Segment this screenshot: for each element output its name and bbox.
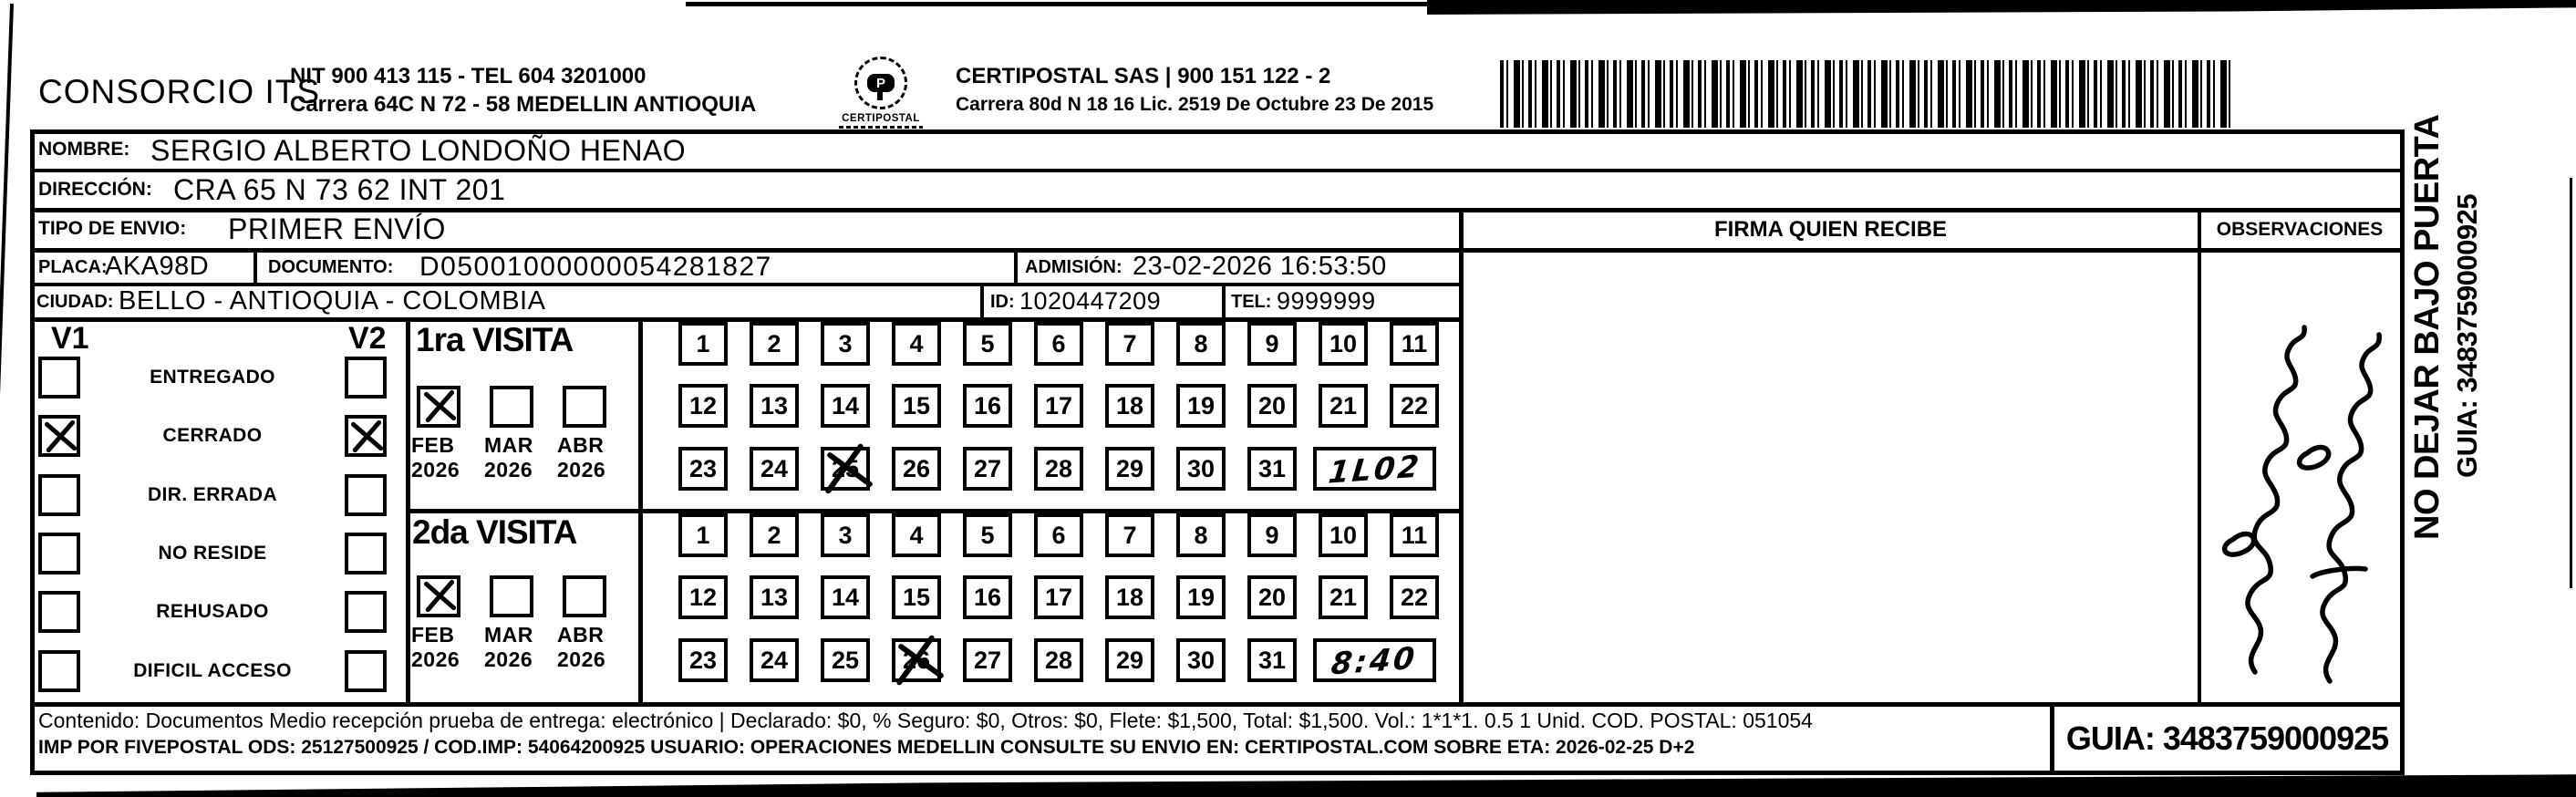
- time-note-box: 1L02: [1313, 447, 1436, 491]
- month-label: ABR: [557, 623, 604, 647]
- id-label: ID:: [990, 292, 1015, 313]
- day-cell-31: 31: [1247, 638, 1297, 682]
- day-cell-25: 25: [821, 447, 870, 491]
- day-cell-24: 24: [750, 638, 799, 682]
- grid-line: [980, 283, 984, 321]
- day-cell-28: 28: [1034, 638, 1083, 682]
- v2-checkbox: [345, 591, 387, 633]
- handwritten-time: 8:40: [1329, 639, 1419, 681]
- month-year: 2026: [484, 647, 533, 672]
- day-cell-14: 14: [821, 575, 870, 619]
- scanned-delivery-form: CONSORCIO ITS NIT 900 413 115 - TEL 604 …: [0, 0, 2576, 797]
- day-cell-13: 13: [750, 384, 799, 428]
- month-checkbox: [417, 575, 460, 617]
- documento-value: D05001000000054281827: [419, 252, 772, 283]
- grid-line: [1222, 283, 1226, 321]
- day-cell-15: 15: [892, 384, 941, 428]
- time-note-box: 8:40: [1313, 638, 1436, 682]
- grid-line: [2198, 208, 2201, 707]
- grid-line: [1014, 248, 1018, 286]
- day-cell-19: 19: [1176, 575, 1226, 619]
- day-cell-15: 15: [892, 575, 941, 619]
- handwritten-time: 1L02: [1327, 448, 1423, 490]
- visit2-months: FEB2026MAR2026ABR2026: [411, 575, 630, 672]
- status-rows: ENTREGADOCERRADODIR. ERRADANO RESIDEREHU…: [38, 348, 387, 700]
- day-cell-29: 29: [1105, 447, 1154, 491]
- grid-line: [406, 317, 410, 707]
- v2-checkbox: [345, 415, 387, 457]
- day-cell-5: 5: [963, 322, 1012, 366]
- grid-line: [30, 129, 35, 775]
- day-cell-25: 25: [821, 638, 870, 682]
- day-cell-10: 10: [1319, 322, 1368, 366]
- day-cell-30: 30: [1176, 638, 1226, 682]
- partner-license: Carrera 80d N 18 16 Lic. 2519 De Octubre…: [956, 90, 1433, 119]
- direccion-label: DIRECCIÓN:: [38, 179, 152, 201]
- scan-artifact-left-edge: [0, 4, 14, 797]
- status-label: DIFICIL ACCESO: [80, 660, 345, 682]
- day-cell-20: 20: [1247, 575, 1297, 619]
- month-item: FEB2026: [411, 575, 484, 672]
- day-cell-24: 24: [750, 447, 799, 491]
- footer-imp-line: IMP POR FIVEPOSTAL ODS: 25127500925 / CO…: [38, 737, 1694, 759]
- day-cell-30: 30: [1176, 447, 1226, 491]
- day-cell-2: 2: [750, 513, 799, 557]
- grid-line: [30, 169, 2405, 172]
- scan-artifact-top-band: [1427, 0, 2576, 15]
- v2-checkbox: [345, 533, 387, 574]
- status-label: NO RESIDE: [80, 543, 345, 564]
- day-cell-22: 22: [1390, 575, 1439, 619]
- day-cell-31: 31: [1247, 447, 1297, 491]
- v1-checkbox: [38, 415, 80, 457]
- ciudad-value: BELLO - ANTIOQUIA - COLOMBIA: [119, 286, 545, 316]
- day-cell-3: 3: [821, 513, 870, 557]
- day-cell-1: 1: [678, 513, 728, 557]
- status-label: REHUSADO: [80, 601, 345, 623]
- day-cell-13: 13: [750, 575, 799, 619]
- footer-content-line: Contenido: Documentos Medio recepción pr…: [38, 709, 1813, 733]
- scan-artifact-top-line: [686, 2, 1429, 6]
- day-cell-18: 18: [1105, 575, 1154, 619]
- day-cell-12: 12: [678, 575, 728, 619]
- day-cell-27: 27: [963, 638, 1012, 682]
- status-label: DIR. ERRADA: [80, 484, 345, 506]
- visit2-day-grid: 1234567891011121314151617181920212223242…: [638, 509, 1463, 705]
- day-cell-16: 16: [963, 384, 1012, 428]
- day-cell-23: 23: [678, 638, 728, 682]
- logo-p-glyph-icon: P: [867, 74, 895, 92]
- status-row: NO RESIDE: [38, 524, 387, 583]
- day-cell-7: 7: [1105, 322, 1154, 366]
- grid-line: [30, 771, 2405, 775]
- guia-number-box: GUIA: 3483759000925: [2054, 707, 2400, 771]
- status-row: ENTREGADO: [38, 348, 387, 407]
- tipo-envio-value: PRIMER ENVÍO: [228, 212, 446, 246]
- partner-name: CERTIPOSTAL SAS | 900 151 122 - 2: [956, 62, 1433, 90]
- firma-header: FIRMA QUIEN RECIBE: [1464, 217, 2198, 243]
- month-checkbox: [563, 575, 606, 617]
- company-name: CONSORCIO ITS: [38, 73, 320, 111]
- month-year: 2026: [557, 647, 605, 672]
- day-cell-22: 22: [1390, 384, 1439, 428]
- tel-label: TEL:: [1231, 292, 1271, 313]
- status-label: ENTREGADO: [80, 367, 345, 388]
- month-checkbox: [490, 575, 533, 617]
- tipo-envio-label: TIPO DE ENVIO:: [38, 218, 186, 240]
- ciudad-label: CIUDAD:: [36, 292, 113, 313]
- visit2-title: 2da VISITA: [412, 513, 577, 552]
- day-cell-18: 18: [1105, 384, 1154, 428]
- month-item: MAR2026: [484, 575, 557, 672]
- day-cell-6: 6: [1034, 513, 1083, 557]
- id-value: 1020447209: [1019, 287, 1161, 316]
- v2-checkbox: [345, 357, 387, 398]
- month-checkbox: [417, 386, 460, 428]
- side-guia-text: GUIA: 3483759000925: [2451, 194, 2484, 478]
- status-row: DIFICIL ACCESO: [38, 641, 387, 699]
- admision-label: ADMISIÓN:: [1025, 257, 1122, 278]
- month-item: ABR2026: [557, 386, 630, 482]
- month-label: FEB: [411, 623, 455, 647]
- day-cell-26: 26: [892, 638, 941, 682]
- day-cell-21: 21: [1319, 384, 1368, 428]
- placa-label: PLACA:: [38, 257, 108, 278]
- direccion-value: CRA 65 N 73 62 INT 201: [173, 173, 505, 207]
- month-label: FEB: [411, 433, 455, 458]
- month-year: 2026: [411, 647, 460, 672]
- logo-text: CERTIPOSTAL: [835, 113, 926, 124]
- documento-label: DOCUMENTO:: [268, 257, 393, 278]
- day-cell-9: 9: [1247, 322, 1297, 366]
- month-item: ABR2026: [557, 575, 630, 672]
- certipostal-logo-icon: P CERTIPOSTAL: [835, 57, 926, 129]
- month-checkbox: [490, 386, 533, 428]
- day-cell-12: 12: [678, 384, 728, 428]
- nombre-label: NOMBRE:: [38, 139, 129, 160]
- month-checkbox: [563, 386, 606, 428]
- v1-checkbox: [38, 533, 80, 574]
- scan-artifact-bottom-band: [36, 773, 2576, 797]
- day-cell-10: 10: [1319, 513, 1368, 557]
- day-cell-8: 8: [1176, 322, 1226, 366]
- day-cell-4: 4: [892, 513, 941, 557]
- day-cell-1: 1: [678, 322, 728, 366]
- day-cell-3: 3: [821, 322, 870, 366]
- v1-checkbox: [38, 650, 80, 692]
- day-cell-17: 17: [1034, 384, 1083, 428]
- v1-checkbox: [38, 474, 80, 516]
- day-cell-26: 26: [892, 447, 941, 491]
- nombre-value: SERGIO ALBERTO LONDOÑO HENAO: [150, 134, 686, 168]
- v1-checkbox: [38, 357, 80, 398]
- status-row: REHUSADO: [38, 583, 387, 641]
- month-year: 2026: [484, 458, 533, 482]
- month-item: MAR2026: [484, 386, 557, 482]
- logo-tagline-mark: [839, 126, 923, 129]
- day-cell-2: 2: [750, 322, 799, 366]
- month-year: 2026: [557, 458, 605, 482]
- day-cell-20: 20: [1247, 384, 1297, 428]
- month-label: MAR: [484, 433, 533, 458]
- logo-circle-icon: P: [854, 57, 907, 109]
- day-cell-14: 14: [821, 384, 870, 428]
- company-info: NIT 900 413 115 - TEL 604 3201000 Carrer…: [290, 62, 756, 119]
- day-cell-6: 6: [1034, 322, 1083, 366]
- admision-value: 23-02-2026 16:53:50: [1133, 252, 1387, 282]
- observaciones-handwriting: [2205, 266, 2396, 695]
- partner-info: CERTIPOSTAL SAS | 900 151 122 - 2 Carrer…: [956, 62, 1433, 119]
- day-cell-11: 11: [1390, 513, 1439, 557]
- day-cell-16: 16: [963, 575, 1012, 619]
- v1-checkbox: [38, 591, 80, 633]
- observaciones-header: OBSERVACIONES: [2199, 219, 2400, 241]
- barcode: [1500, 60, 2235, 128]
- month-label: ABR: [557, 433, 604, 458]
- month-label: MAR: [484, 623, 533, 647]
- company-nit-tel: NIT 900 413 115 - TEL 604 3201000: [290, 62, 756, 90]
- grid-line: [253, 248, 257, 286]
- day-cell-11: 11: [1390, 322, 1439, 366]
- day-cell-7: 7: [1105, 513, 1154, 557]
- scan-artifact-right-line: [2570, 178, 2572, 588]
- day-cell-23: 23: [678, 447, 728, 491]
- side-warning-text: NO DEJAR BAJO PUERTA: [2408, 115, 2447, 540]
- day-cell-28: 28: [1034, 447, 1083, 491]
- status-label: CERRADO: [80, 425, 345, 447]
- visit1-day-grid: 1234567891011121314151617181920212223242…: [638, 317, 1463, 513]
- day-cell-4: 4: [892, 322, 941, 366]
- day-cell-17: 17: [1034, 575, 1083, 619]
- v2-checkbox: [345, 650, 387, 692]
- day-cell-5: 5: [963, 513, 1012, 557]
- grid-line: [2400, 129, 2405, 775]
- day-cell-27: 27: [963, 447, 1012, 491]
- day-cell-29: 29: [1105, 638, 1154, 682]
- month-year: 2026: [411, 458, 460, 482]
- visit1-months: FEB2026MAR2026ABR2026: [411, 386, 630, 482]
- placa-value: AKA98D: [105, 252, 209, 282]
- day-cell-19: 19: [1176, 384, 1226, 428]
- tel-value: 9999999: [1277, 287, 1376, 316]
- day-cell-21: 21: [1319, 575, 1368, 619]
- day-cell-9: 9: [1247, 513, 1297, 557]
- v2-checkbox: [345, 474, 387, 516]
- status-row: DIR. ERRADA: [38, 466, 387, 524]
- day-cell-8: 8: [1176, 513, 1226, 557]
- company-address: Carrera 64C N 72 - 58 MEDELLIN ANTIOQUIA: [290, 90, 756, 119]
- visit1-title: 1ra VISITA: [416, 321, 573, 359]
- month-item: FEB2026: [411, 386, 484, 482]
- status-row: CERRADO: [38, 407, 387, 465]
